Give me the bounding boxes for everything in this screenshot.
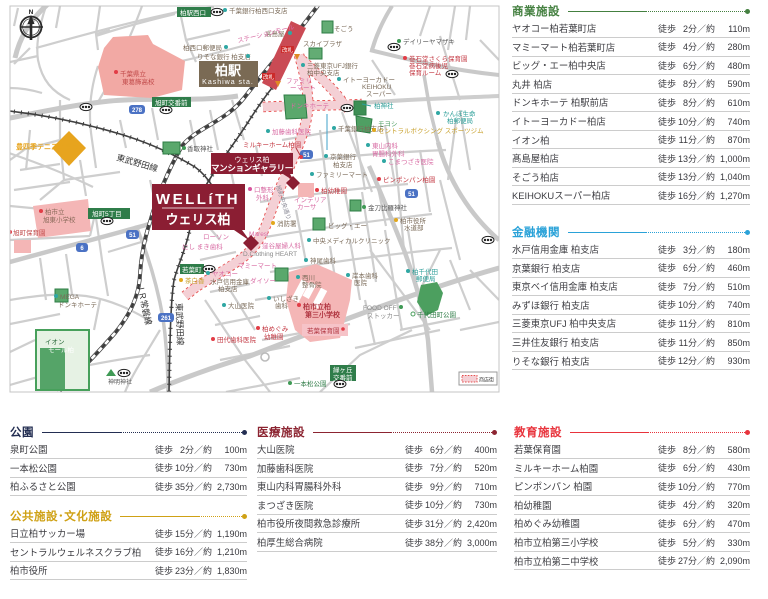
svg-text:柏幼稚園: 柏幼稚園 [321, 186, 347, 195]
svg-text:郵便局: 郵便局 [416, 274, 436, 283]
svg-text:KEIHOKU: KEIHOKU [362, 84, 392, 91]
svg-text:にし まき歯科: にし まき歯科 [182, 242, 223, 251]
svg-text:ファミリ: ファミリ [286, 77, 312, 85]
svg-text:田代歯科医院: 田代歯科医院 [217, 335, 257, 344]
svg-text:マミーマート: マミーマート [238, 262, 277, 270]
svg-text:窪谷屋婦人科: 窪谷屋婦人科 [262, 241, 302, 250]
svg-text:口整形: 口整形 [254, 185, 274, 194]
svg-text:51: 51 [408, 192, 415, 198]
svg-text:278: 278 [132, 108, 143, 114]
svg-text:旭東小学校: 旭東小学校 [43, 215, 76, 224]
svg-text:千葉銀行柏西口支店: 千葉銀行柏西口支店 [229, 6, 288, 15]
svg-text:旭町保育園: 旭町保育園 [13, 228, 46, 237]
svg-text:神尾歯科: 神尾歯科 [310, 256, 337, 265]
svg-text:整骨院: 整骨院 [302, 280, 322, 289]
svg-text:保育ルーム: 保育ルーム [409, 68, 442, 77]
svg-text:モヨシ: モヨシ [378, 120, 398, 128]
svg-text:N: N [29, 9, 34, 16]
svg-text:第三小学校: 第三小学校 [305, 310, 341, 319]
svg-text:香取神社: 香取神社 [187, 144, 214, 153]
svg-text:京葉銀行: 京葉銀行 [330, 152, 357, 161]
svg-text:改札: 改札 [282, 46, 294, 54]
svg-text:柏市役所: 柏市役所 [400, 216, 427, 225]
svg-text:若葉町: 若葉町 [182, 265, 202, 274]
svg-text:そごう: そごう [334, 24, 354, 33]
svg-text:東葛飾高校: 東葛飾高校 [122, 77, 155, 86]
svg-text:茶白香: 茶白香 [185, 276, 205, 285]
svg-text:中央メディカルクリニック: 中央メディカルクリニック [313, 236, 391, 245]
svg-text:巻石堂病後児: 巻石堂病後児 [409, 61, 449, 70]
svg-text:旭町交番前: 旭町交番前 [155, 98, 188, 107]
svg-text:かんぽ生命: かんぽ生命 [443, 109, 476, 118]
svg-text:若葉保育園: 若葉保育園 [307, 326, 340, 335]
svg-text:ーマート: ーマート [290, 84, 316, 92]
svg-text:千代田町公園: 千代田町公園 [417, 310, 456, 319]
svg-text:ヤオコー: ヤオコー [212, 270, 238, 278]
svg-text:こまつざき医院: こまつざき医院 [388, 157, 434, 166]
svg-text:ストッカー: ストッカー [367, 312, 400, 320]
svg-text:モール柏: モール柏 [48, 345, 74, 354]
svg-text:柏中央支店: 柏中央支店 [307, 68, 340, 77]
svg-text:ファミリーマート: ファミリーマート [316, 171, 368, 179]
svg-text:金刀比羅神社: 金刀比羅神社 [368, 203, 408, 212]
svg-text:いしざき: いしざき [273, 294, 299, 303]
svg-text:51: 51 [129, 233, 136, 239]
svg-text:りそな銀行 柏支店: りそな銀行 柏支店 [197, 52, 251, 61]
svg-text:柏神社: 柏神社 [374, 101, 394, 110]
svg-text:柏めぐみ: 柏めぐみ [262, 324, 289, 333]
svg-text:西川: 西川 [302, 274, 315, 282]
svg-text:柏郵便局: 柏郵便局 [447, 116, 473, 125]
svg-text:改札: 改札 [263, 73, 275, 81]
svg-text:一本松公園: 一本松公園 [294, 379, 327, 388]
svg-text:FOOD OFF: FOOD OFF [363, 305, 397, 312]
svg-text:インテリア: インテリア [294, 196, 327, 204]
svg-text:千葉県立: 千葉県立 [120, 69, 147, 78]
svg-text:ビッグ・エー: ビッグ・エー [328, 221, 367, 230]
svg-text:51: 51 [303, 153, 310, 159]
svg-text:柏市立: 柏市立 [45, 207, 65, 216]
svg-text:ピンポンパン柏園: ピンポンパン柏園 [383, 175, 435, 184]
svg-text:外科: 外科 [256, 193, 270, 202]
svg-text:加藤歯科医院: 加藤歯科医院 [272, 127, 312, 136]
svg-text:大山医院: 大山医院 [228, 301, 255, 310]
svg-text:ローソン: ローソン [203, 234, 229, 241]
svg-text:胃腸科外科: 胃腸科外科 [372, 149, 405, 158]
svg-text:ドンキホーテ: ドンキホーテ [58, 301, 97, 309]
svg-text:マンションギャラリー: マンションギャラリー [211, 163, 293, 173]
svg-text:医院: 医院 [354, 278, 368, 287]
svg-text:緑ヶ丘: 緑ヶ丘 [333, 365, 353, 374]
svg-text:カーサ: カーサ [297, 203, 316, 211]
svg-text:柏駅西口: 柏駅西口 [180, 8, 206, 17]
svg-text:WELLíTH: WELLíTH [156, 191, 240, 208]
svg-text:水道部: 水道部 [404, 223, 424, 232]
svg-text:柏市立柏: 柏市立柏 [303, 302, 331, 311]
svg-text:三菱東京UFJ銀行: 三菱東京UFJ銀行 [307, 61, 358, 70]
svg-text:豊四季テニスクラブ: 豊四季テニスクラブ [16, 142, 79, 151]
svg-text:巻石堂さくら保育園: 巻石堂さくら保育園 [409, 54, 468, 63]
svg-text:東山内科: 東山内科 [372, 141, 399, 150]
svg-text:イオン: イオン [45, 338, 65, 346]
svg-text:柏支店: 柏支店 [333, 160, 353, 169]
svg-text:セントラルボクシング スポーツジム: セントラルボクシング スポーツジム [378, 126, 484, 135]
svg-text:ウェリス柏: ウェリス柏 [165, 212, 230, 227]
svg-text:イトーヨーカドー: イトーヨーカドー [343, 76, 395, 84]
svg-text:D.Clothing HEART: D.Clothing HEART [243, 251, 297, 258]
svg-text:旭町5丁目: 旭町5丁目 [92, 209, 122, 218]
svg-text:柏千代田: 柏千代田 [412, 267, 438, 276]
svg-text:スカイプラザ: スカイプラザ [303, 40, 343, 48]
svg-text:歯科: 歯科 [275, 301, 289, 310]
svg-text:Kashiwa sta.: Kashiwa sta. [202, 79, 254, 86]
svg-text:消防署: 消防署 [277, 219, 297, 228]
svg-text:261: 261 [161, 316, 172, 322]
svg-text:幼稚園: 幼稚園 [264, 332, 284, 341]
svg-text:ドンキホーテ: ドンキホーテ [290, 102, 329, 110]
svg-text:東武野田線: 東武野田線 [174, 303, 185, 346]
svg-text:MEGA: MEGA [60, 294, 80, 301]
svg-text:柏駅: 柏駅 [215, 63, 242, 78]
svg-text:神明神社: 神明神社 [108, 378, 132, 386]
svg-text:商店街: 商店街 [479, 377, 494, 384]
svg-text:柏支店: 柏支店 [218, 284, 238, 293]
svg-text:ミルキーホーム柏園: ミルキーホーム柏園 [243, 140, 301, 149]
svg-text:スーパー: スーパー [366, 90, 392, 98]
svg-text:柏西口郵便局: 柏西口郵便局 [183, 43, 222, 52]
svg-text:水戸信用金庫: 水戸信用金庫 [210, 277, 250, 286]
svg-text:ダイソー: ダイソー [250, 276, 276, 285]
svg-text:岸本歯科: 岸本歯科 [352, 271, 379, 280]
svg-text:デイリーヤマザキ: デイリーヤマザキ [403, 37, 455, 46]
